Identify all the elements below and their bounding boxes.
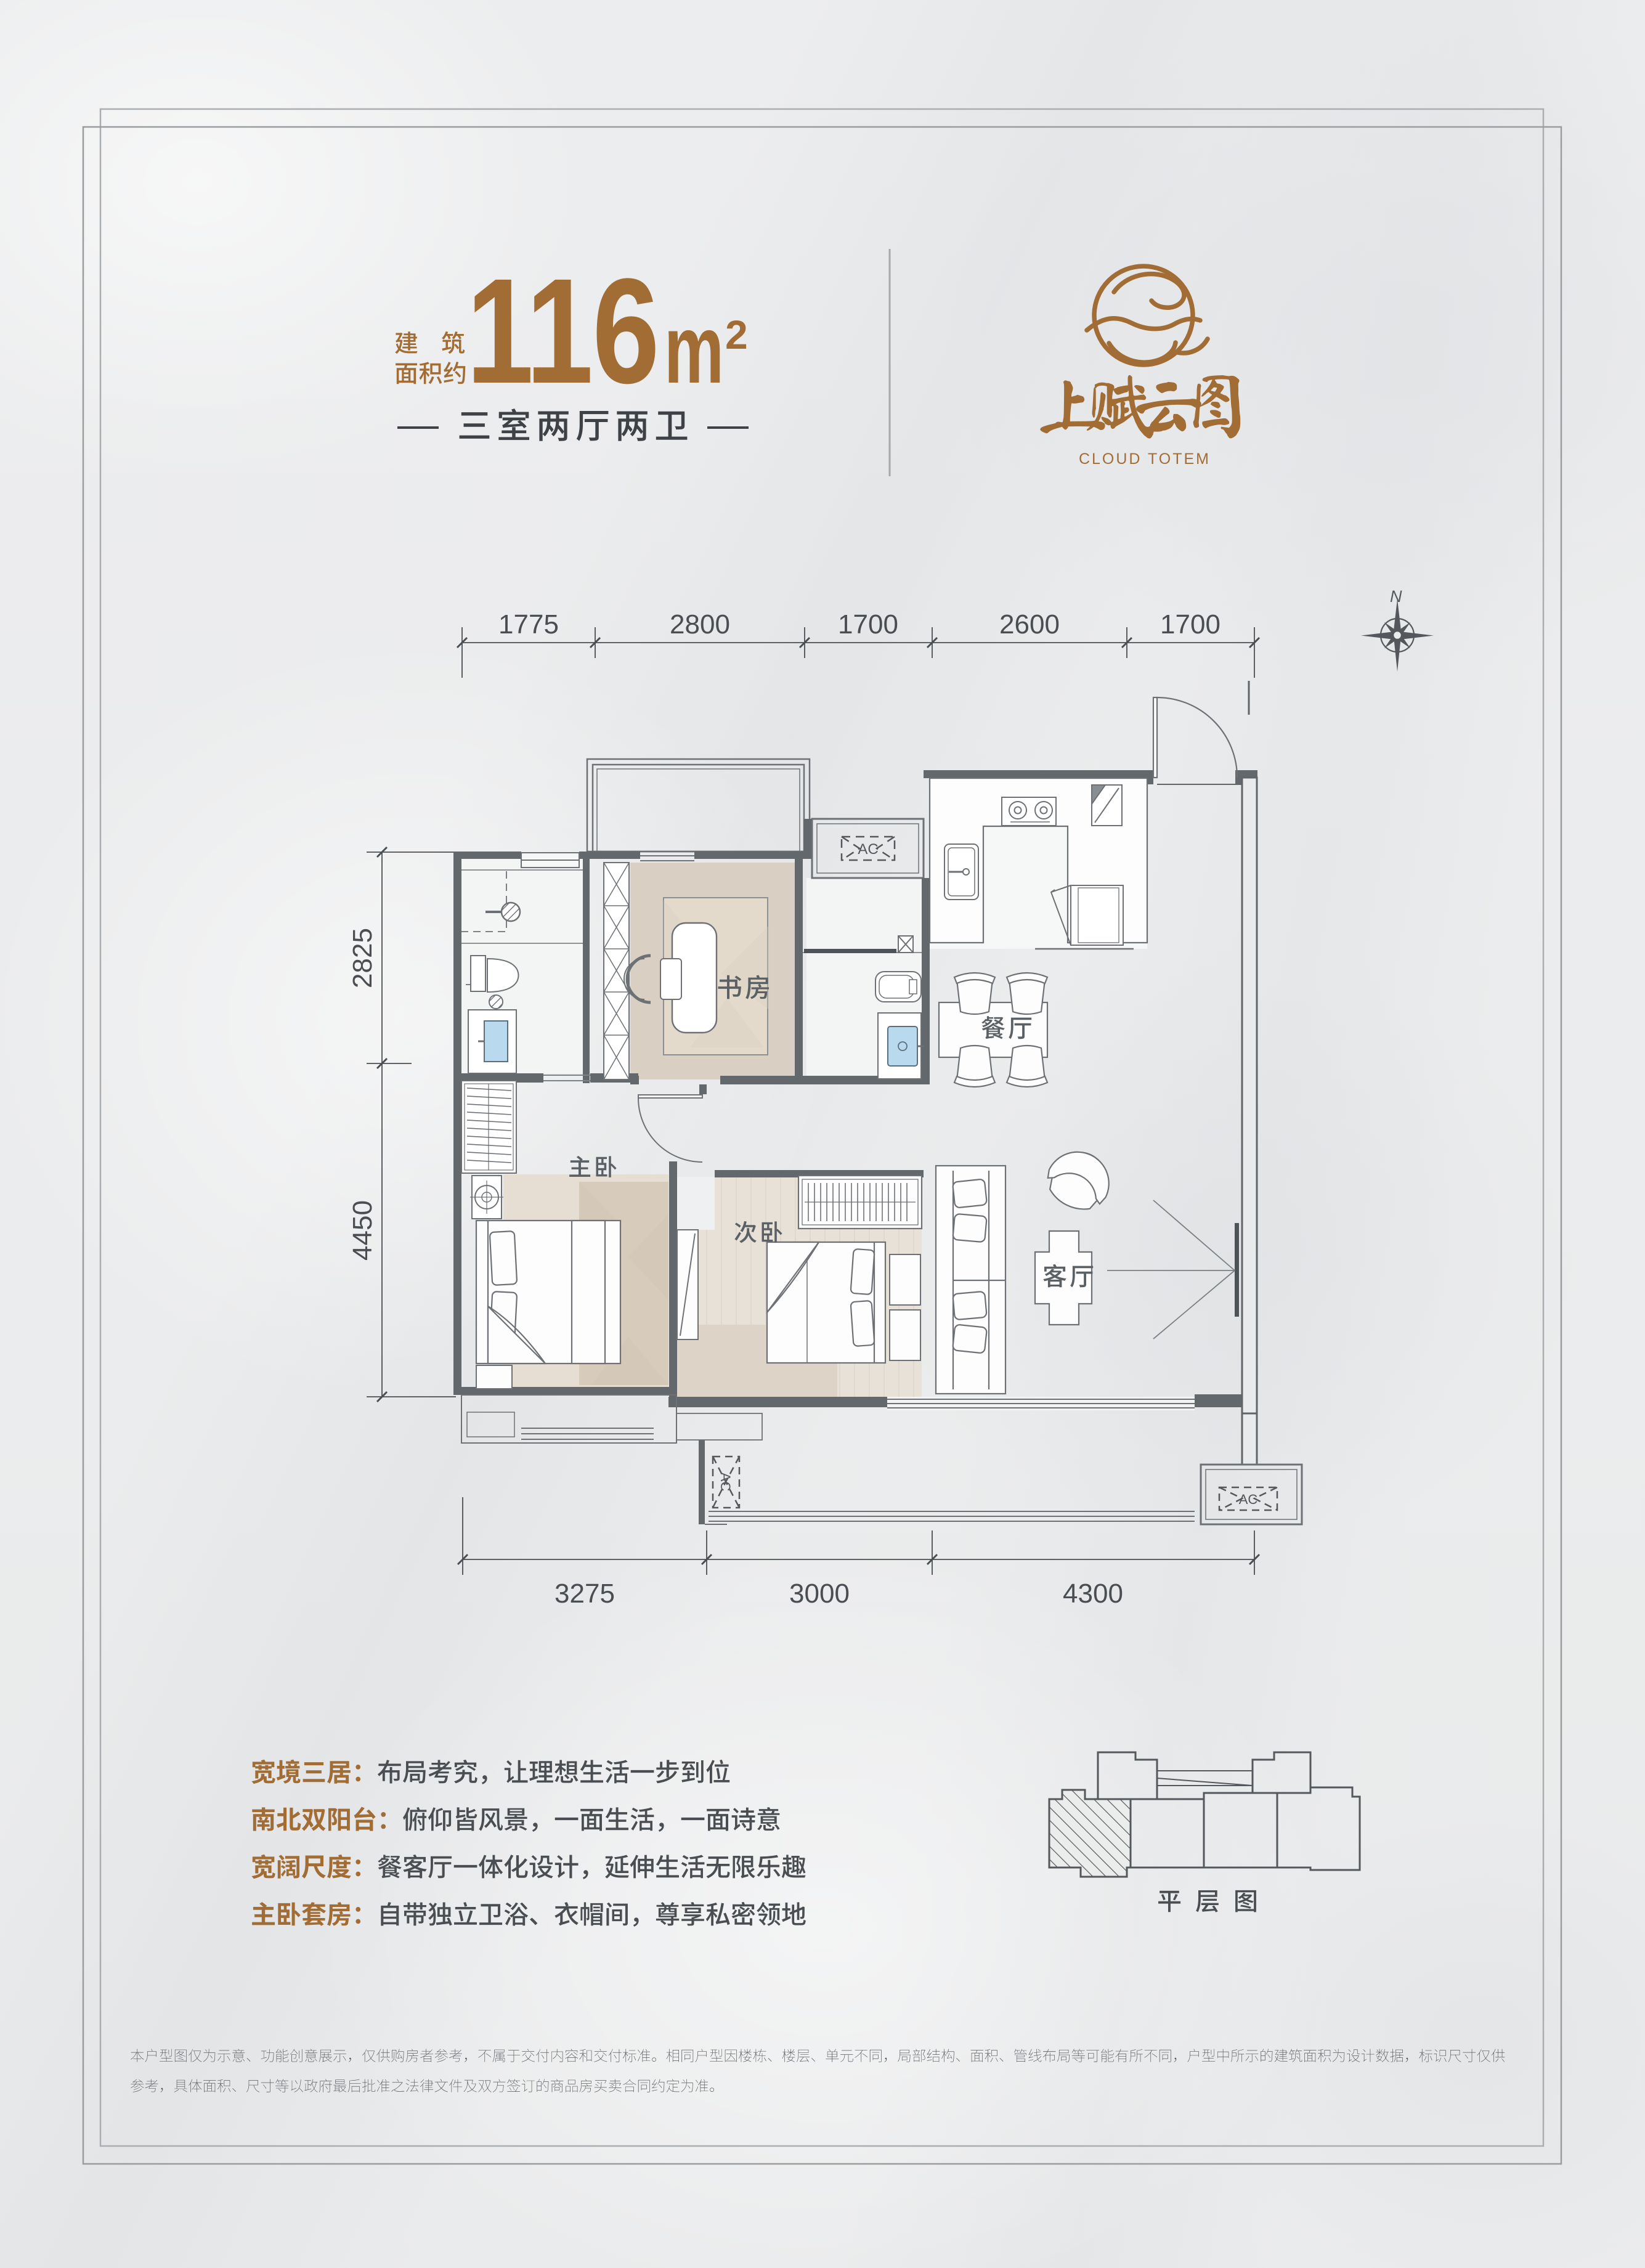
svg-text:m: m: [664, 295, 724, 404]
svg-text:4300: 4300: [1063, 1579, 1123, 1609]
svg-text:1700: 1700: [1160, 609, 1221, 640]
svg-text:N: N: [1390, 587, 1402, 606]
svg-text:AC: AC: [718, 1473, 733, 1492]
svg-text:AC: AC: [858, 841, 878, 858]
svg-text:116: 116: [466, 248, 659, 415]
svg-text:1775: 1775: [498, 609, 559, 640]
svg-text:2825: 2825: [347, 928, 378, 988]
svg-text:2800: 2800: [670, 609, 730, 640]
svg-text:1700: 1700: [838, 609, 898, 640]
svg-text:2600: 2600: [999, 609, 1060, 640]
svg-text:CLOUD TOTEM: CLOUD TOTEM: [1079, 450, 1211, 468]
svg-text:2: 2: [725, 312, 748, 357]
svg-text:AC: AC: [1239, 1492, 1258, 1507]
svg-text:3275: 3275: [554, 1579, 615, 1609]
svg-text:4450: 4450: [347, 1200, 378, 1261]
svg-text:3000: 3000: [789, 1579, 850, 1609]
